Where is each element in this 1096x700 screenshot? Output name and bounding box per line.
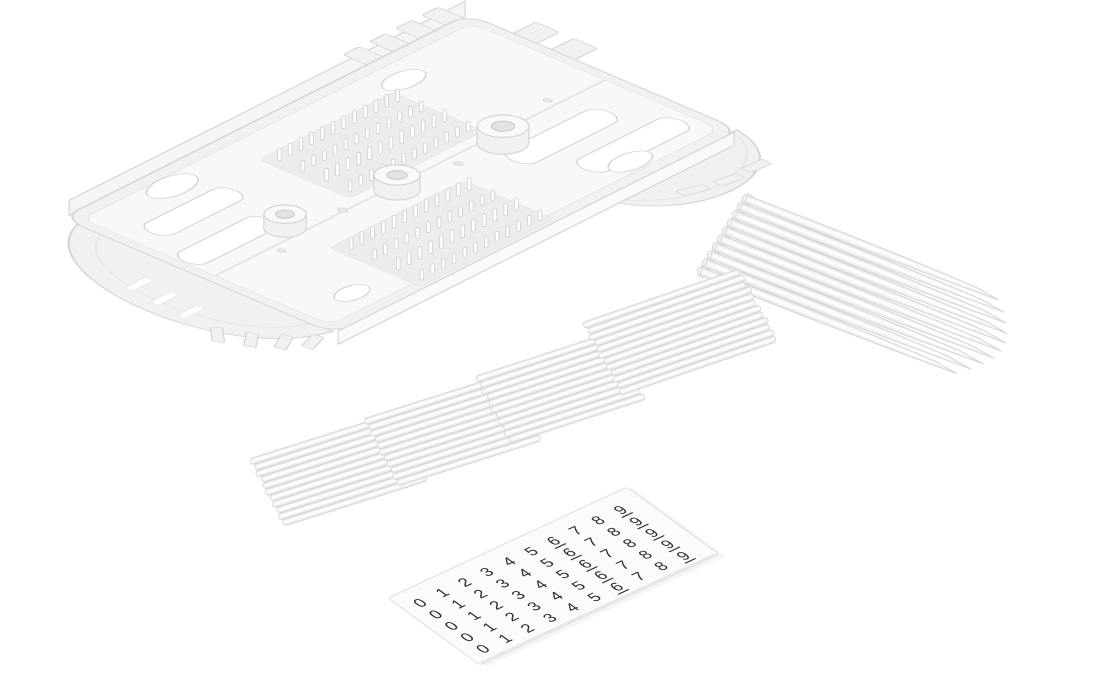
comb-tooth xyxy=(321,127,325,140)
comb-tooth xyxy=(346,158,350,171)
comb-tooth xyxy=(482,214,486,227)
scene-canvas: 0000011111222223333344444555556666677777… xyxy=(0,0,1096,700)
comb-tooth xyxy=(515,198,519,211)
comb-tooth xyxy=(387,117,391,128)
comb-tooth xyxy=(480,195,484,206)
comb-tooth xyxy=(459,206,463,217)
comb-tooth xyxy=(418,246,422,259)
comb-tooth xyxy=(538,210,542,221)
comb-tooth xyxy=(506,226,510,237)
comb-tooth xyxy=(472,219,476,232)
comb-tooth xyxy=(323,150,327,161)
comb-tooth xyxy=(384,244,388,255)
comb-tooth xyxy=(396,89,400,102)
number-label-sheet: 0000011111222223333344444555556666677777… xyxy=(388,486,726,668)
comb-tooth xyxy=(439,236,443,249)
comb-tooth xyxy=(413,148,417,159)
comb-tooth xyxy=(288,143,292,156)
comb-tooth xyxy=(400,131,404,144)
comb-tooth xyxy=(357,152,361,165)
comb-tooth xyxy=(301,161,305,172)
comb-tooth xyxy=(407,252,411,265)
comb-tooth xyxy=(474,242,478,253)
comb-tooth xyxy=(371,226,375,239)
comb-tooth xyxy=(467,178,471,191)
comb-tooth xyxy=(409,107,413,118)
comb-tooth xyxy=(427,222,431,233)
comb-tooth xyxy=(443,109,447,122)
comb-tooth xyxy=(342,116,346,128)
tray-post xyxy=(374,165,420,200)
comb-tooth xyxy=(402,154,406,165)
comb-tooth xyxy=(370,170,374,181)
comb-tooth xyxy=(389,136,393,149)
comb-tooth xyxy=(385,95,389,108)
comb-tooth xyxy=(504,203,508,216)
comb-tooth xyxy=(416,228,420,239)
comb-tooth xyxy=(527,215,531,226)
comb-tooth xyxy=(278,149,282,162)
comb-tooth xyxy=(312,155,316,166)
comb-tooth xyxy=(359,175,363,186)
comb-tooth xyxy=(333,144,337,155)
comb-tooth xyxy=(378,142,382,155)
comb-tooth xyxy=(382,221,386,234)
comb-tooth xyxy=(463,248,467,259)
comb-tooth xyxy=(325,169,329,182)
tray-clip xyxy=(244,332,259,348)
comb-tooth xyxy=(420,269,424,280)
comb-tooth xyxy=(368,147,372,160)
comb-tooth xyxy=(446,189,450,202)
comb-tooth xyxy=(360,232,364,245)
comb-tooth xyxy=(517,221,521,232)
comb-tooth xyxy=(414,205,418,218)
comb-tooth xyxy=(373,249,377,259)
comb-tooth xyxy=(437,217,441,228)
comb-tooth xyxy=(335,163,339,176)
comb-tooth xyxy=(434,137,438,148)
comb-tooth xyxy=(493,209,497,222)
comb-tooth xyxy=(396,257,400,270)
comb-tooth xyxy=(348,181,352,192)
comb-tooth xyxy=(495,232,499,243)
comb-tooth xyxy=(448,211,452,222)
comb-tooth xyxy=(456,127,460,138)
comb-tooth xyxy=(374,100,378,113)
comb-tooth xyxy=(435,194,439,207)
comb-tooth xyxy=(299,138,303,151)
post-hole xyxy=(491,121,514,131)
comb-tooth xyxy=(431,264,435,275)
comb-tooth xyxy=(392,216,396,229)
comb-tooth xyxy=(421,120,425,132)
comb-tooth xyxy=(452,253,456,263)
tray-post xyxy=(477,115,529,154)
comb-tooth xyxy=(461,225,465,238)
comb-tooth xyxy=(349,237,353,250)
comb-tooth xyxy=(310,132,314,145)
comb-tooth xyxy=(445,132,449,143)
comb-tooth xyxy=(403,210,407,223)
comb-tooth xyxy=(366,128,370,139)
comb-tooth xyxy=(394,238,398,249)
comb-tooth xyxy=(484,237,488,248)
comb-tooth xyxy=(411,125,415,138)
comb-tooth xyxy=(466,121,470,132)
comb-tooth xyxy=(376,123,380,134)
comb-tooth xyxy=(353,111,357,124)
comb-tooth xyxy=(457,183,461,196)
tray-clip xyxy=(211,327,225,343)
comb-tooth xyxy=(470,201,474,212)
comb-tooth xyxy=(429,241,433,254)
comb-tooth xyxy=(355,134,359,145)
comb-tooth xyxy=(405,233,409,244)
comb-tooth xyxy=(398,112,402,123)
comb-tooth xyxy=(331,122,335,135)
comb-tooth xyxy=(450,230,454,243)
comb-tooth xyxy=(419,101,423,112)
post-hole xyxy=(275,210,294,218)
comb-tooth xyxy=(442,258,446,269)
comb-tooth xyxy=(491,190,495,201)
comb-tooth xyxy=(432,115,436,128)
comb-tooth xyxy=(423,143,427,154)
post-hole xyxy=(387,171,408,180)
comb-tooth xyxy=(344,139,348,150)
tray-post xyxy=(264,205,306,237)
product-photo: 0000011111222223333344444555556666677777… xyxy=(0,0,1096,700)
comb-tooth xyxy=(364,105,368,118)
comb-tooth xyxy=(424,199,428,212)
